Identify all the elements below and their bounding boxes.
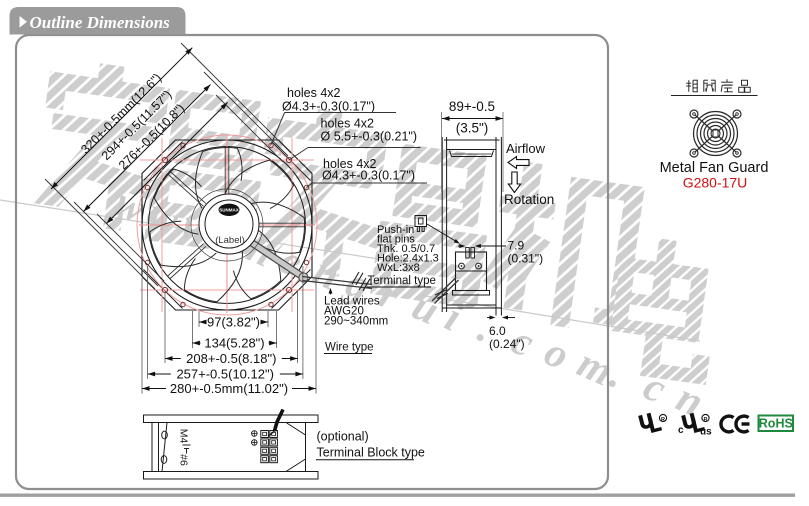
svg-text:R: R (704, 417, 708, 423)
svg-text:7.9: 7.9 (508, 239, 525, 253)
svg-text:G280-17U: G280-17U (683, 175, 748, 191)
svg-text:89+-0.5: 89+-0.5 (449, 99, 495, 114)
svg-text:Terminal Block type: Terminal Block type (317, 446, 425, 460)
svg-text:RoHS: RoHS (759, 417, 793, 431)
svg-text:us: us (700, 427, 712, 438)
svg-text:M4: M4 (178, 429, 190, 444)
svg-text:(optional): (optional) (317, 430, 369, 444)
svg-text:134(5.28"): 134(5.28") (204, 336, 264, 351)
svg-text:257+-0.5(10.12"): 257+-0.5(10.12") (176, 367, 274, 382)
svg-text:290~340mm: 290~340mm (324, 316, 388, 328)
svg-text:Airflow: Airflow (506, 141, 546, 156)
svg-text:WxL:3x8: WxL:3x8 (377, 262, 420, 274)
svg-text:Rotation: Rotation (504, 192, 554, 207)
svg-text:holes 4x2: holes 4x2 (321, 117, 375, 131)
svg-text:#6: #6 (178, 454, 190, 466)
svg-text:(3.5"): (3.5") (456, 121, 489, 136)
svg-text:Ø 5.5+-0.3(0.21"): Ø 5.5+-0.3(0.21") (321, 130, 418, 144)
svg-text:(0.24"): (0.24") (489, 337, 525, 351)
svg-text:holes 4x2: holes 4x2 (287, 86, 341, 100)
svg-text:(Label): (Label) (215, 235, 245, 246)
svg-text:Ø4.3+-0.3(0.17"): Ø4.3+-0.3(0.17") (322, 169, 415, 183)
svg-text:Outline Dimensions: Outline Dimensions (30, 13, 171, 32)
svg-text:Ø4.3+-0.3(0.17"): Ø4.3+-0.3(0.17") (282, 100, 375, 114)
svg-text:280+-0.5mm(11.02"): 280+-0.5mm(11.02") (170, 381, 288, 396)
svg-text:R: R (661, 417, 665, 423)
svg-text:97(3.82"): 97(3.82") (207, 315, 260, 330)
svg-text:Terminal type: Terminal type (368, 275, 436, 287)
svg-text:SUNMAX: SUNMAX (219, 208, 239, 213)
svg-text:6.0: 6.0 (489, 324, 506, 338)
svg-text:Wire type: Wire type (325, 342, 374, 354)
svg-text:(0.31"): (0.31") (508, 252, 544, 266)
svg-text:208+-0.5(8.18"): 208+-0.5(8.18") (186, 351, 276, 366)
